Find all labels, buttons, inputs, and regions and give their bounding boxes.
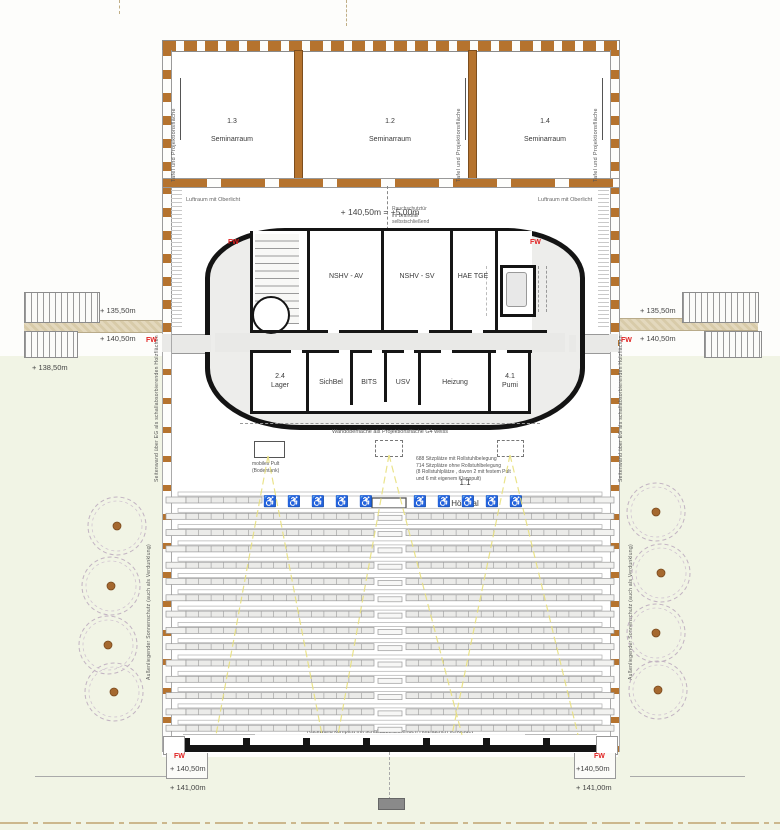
seminar-east-wall xyxy=(610,50,620,332)
level-left-upper: + 135,50m xyxy=(100,306,136,316)
fw-label-core-west: FW xyxy=(228,239,239,246)
room-number: 1.3 xyxy=(227,118,237,125)
void-hatch-right xyxy=(598,190,609,328)
level-bottom-right-2: + 141,00m xyxy=(576,783,612,793)
room-number: 1.2 xyxy=(385,118,395,125)
elevator-car xyxy=(506,272,527,307)
corridor-west-stub xyxy=(168,334,208,354)
stairs-left-upper xyxy=(24,292,100,323)
door-swing-dashed xyxy=(538,266,540,312)
wall xyxy=(495,231,498,333)
room-name: Seminarraum xyxy=(524,136,566,143)
void-note-left: Luftraum mit Oberlicht xyxy=(186,197,240,204)
rear-wall-columns xyxy=(183,738,597,745)
pult-position-right xyxy=(497,440,524,457)
seminar-south-wall xyxy=(162,178,620,188)
pult-position-center xyxy=(375,440,403,457)
boundary-mark-top-2 xyxy=(346,0,348,26)
boundary-mark-top-1 xyxy=(119,0,121,14)
level-main: + 140,50m = +5,00m xyxy=(300,207,460,218)
door-gap xyxy=(328,330,339,333)
hall-name: Hörsaal xyxy=(451,499,479,508)
axis-dashed-line xyxy=(389,752,391,800)
door-gap xyxy=(339,350,350,353)
level-left-mid: + 140,50m xyxy=(100,334,136,344)
seat-count-note: 688 Sitzplätze mit Rollstuhlbelegung 714… xyxy=(416,456,536,482)
terrace-edge-right xyxy=(630,776,745,777)
core-room-sichbel: SichBel xyxy=(310,378,352,387)
wall xyxy=(307,231,310,333)
core-door-east xyxy=(569,335,576,352)
level-right-mid: + 140,50m xyxy=(640,334,676,344)
level-bottom-left-2: + 141,00m xyxy=(170,783,206,793)
core-room-lager: 2.4 Lager xyxy=(252,372,308,390)
board-note-1-2: Tafel und Projektionsfläche xyxy=(456,62,462,182)
room-number: 1.4 xyxy=(540,118,550,125)
board-note-1-4: Tafel und Projektionsfläche xyxy=(593,62,599,182)
fw-label-exit-west: FW xyxy=(174,753,185,760)
stairs-left-lower xyxy=(24,331,78,358)
side-wall-note-east: Seitenwand über EG als schallabsorbieren… xyxy=(618,352,624,482)
wall xyxy=(250,330,547,333)
door-swing-dashed xyxy=(546,266,548,312)
mobile-pult-note: mobiles Pult (Bodentank) xyxy=(252,461,279,474)
board-line-1-4 xyxy=(602,78,603,140)
room-label-1-2: 1.2 Seminarraum xyxy=(350,108,430,144)
door-gap xyxy=(496,350,507,353)
core-door-west xyxy=(204,335,211,352)
terrace-edge-left xyxy=(35,776,185,777)
fw-label-exit-east: FW xyxy=(594,753,605,760)
projection-dashed-line xyxy=(240,423,540,425)
door-gap xyxy=(472,330,483,333)
door-gap xyxy=(291,350,302,353)
projection-note: Wandoberfläche als Projektionsfläche G4 … xyxy=(280,429,500,436)
stairs-right-lower xyxy=(704,331,762,358)
rear-wall xyxy=(183,745,597,752)
rear-wall-note: Rückwand komplett mit schallabsorbierend… xyxy=(255,729,525,736)
side-wall-note-west: Seitenwand über EG als schallabsorbieren… xyxy=(154,352,160,482)
room-label-1-3: 1.3 Seminarraum xyxy=(192,108,272,144)
seminar-divider-1 xyxy=(294,50,303,188)
room-name: Seminarraum xyxy=(369,136,411,143)
hall-west-wall xyxy=(162,332,172,752)
void-hatch-left xyxy=(171,190,182,328)
section-marker xyxy=(378,798,405,810)
seminar-divider-2 xyxy=(468,50,477,188)
core-room-bits: BITS xyxy=(353,378,385,387)
core-stair-curve xyxy=(252,296,290,334)
door-gap xyxy=(404,350,414,353)
stairs-right-upper xyxy=(682,292,759,323)
wall xyxy=(450,231,453,333)
core-room-usv: USV xyxy=(387,378,419,387)
mobile-pult xyxy=(254,441,285,458)
hall-west-door xyxy=(162,334,171,352)
fw-label-walkway-west: FW xyxy=(146,337,157,344)
wall xyxy=(250,231,253,333)
door-gap xyxy=(418,330,429,333)
level-bottom-right-1: +140,50m xyxy=(576,764,610,774)
core-room-nshv-av: NSHV - AV xyxy=(312,272,380,281)
wall xyxy=(250,411,531,414)
room-name: Seminarraum xyxy=(211,136,253,143)
level-left-lower: + 138,50m xyxy=(32,363,68,373)
core-room-hae-tge: HAE TGE xyxy=(450,272,496,281)
level-right-upper: + 135,50m xyxy=(640,306,676,316)
room-label-1-4: 1.4 Seminarraum xyxy=(505,108,585,144)
fw-label-walkway-east: FW xyxy=(621,337,632,344)
core-room-nshv-sv: NSHV - SV xyxy=(386,272,448,281)
level-bottom-left-1: + 140,50m xyxy=(170,764,206,774)
sun-shade-note-east: Außenliegender Sonnenschutz (auch als Ve… xyxy=(628,540,634,680)
seminar-north-wall xyxy=(162,40,620,52)
hall-east-door xyxy=(609,334,618,352)
floor-plan: 1.3 Seminarraum 1.2 Seminarraum 1.4 Semi… xyxy=(0,0,780,830)
wall xyxy=(384,350,387,402)
door-gap xyxy=(441,350,452,353)
door-gap xyxy=(372,350,382,353)
board-line-1-2 xyxy=(465,78,466,140)
core-room-heizung: Heizung xyxy=(422,378,488,387)
smoke-door-note: Rauchschutztür im Brandfall selbstschlie… xyxy=(392,206,429,226)
board-line-1-3 xyxy=(180,78,181,140)
fw-label-core-east: FW xyxy=(530,239,541,246)
core-room-pumi: 4.1 Pumi xyxy=(490,372,530,390)
wall xyxy=(381,231,384,333)
board-note-1-3: Tafel und Projektionsfläche xyxy=(171,62,177,182)
sun-shade-note-west: Außenliegender Sonnenschutz (auch als Ve… xyxy=(146,540,152,680)
void-note-right: Luftraum mit Oberlicht xyxy=(538,197,592,204)
